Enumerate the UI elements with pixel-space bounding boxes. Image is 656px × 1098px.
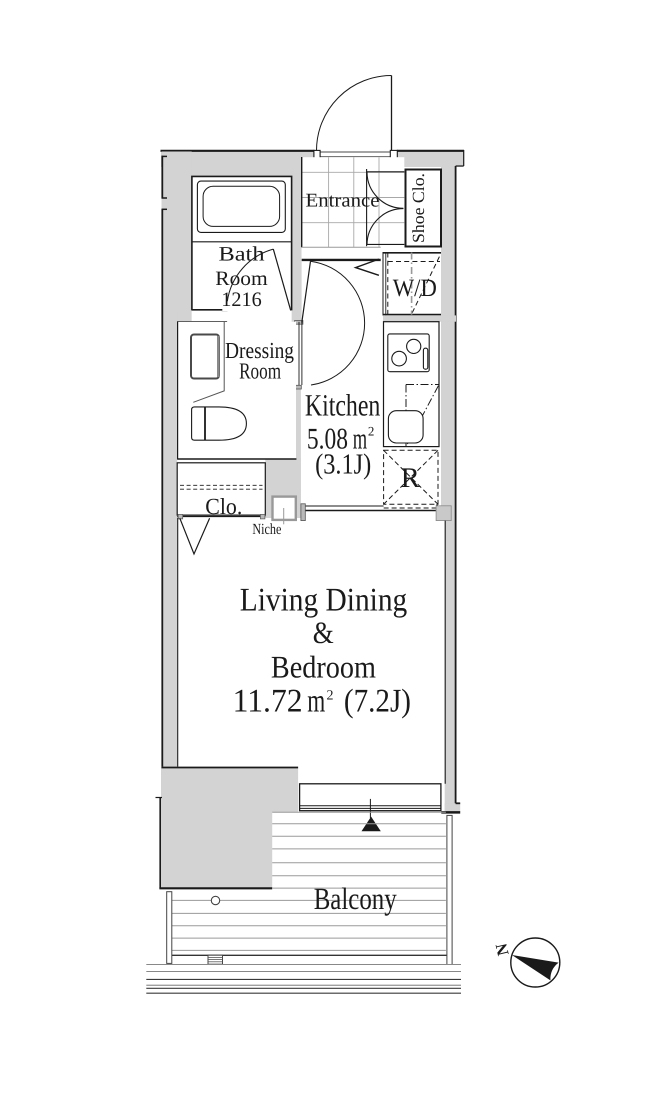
svg-text:Entrance: Entrance [306, 191, 380, 212]
svg-text:Room: Room [239, 359, 281, 384]
svg-text:2: 2 [327, 689, 334, 704]
svg-text:&: & [313, 615, 334, 650]
svg-text:Bath: Bath [219, 243, 265, 265]
svg-text:Kitchen: Kitchen [305, 387, 381, 422]
svg-text:W/D: W/D [393, 275, 437, 302]
svg-text:Bedroom: Bedroom [271, 650, 376, 685]
svg-text:R: R [401, 463, 420, 494]
svg-text:11.72: 11.72 [233, 684, 303, 720]
svg-text:Clo.: Clo. [205, 494, 242, 519]
svg-text:Niche: Niche [252, 521, 281, 538]
svg-text:2: 2 [368, 423, 375, 438]
svg-text:m: m [307, 684, 325, 720]
svg-text:Living Dining: Living Dining [240, 583, 408, 619]
svg-text:Room: Room [215, 268, 268, 290]
svg-text:Shoe Clo.: Shoe Clo. [409, 173, 428, 243]
svg-text:(7.2J): (7.2J) [344, 684, 411, 720]
svg-text:Balcony: Balcony [314, 881, 397, 916]
svg-text:(3.1J): (3.1J) [315, 449, 371, 481]
